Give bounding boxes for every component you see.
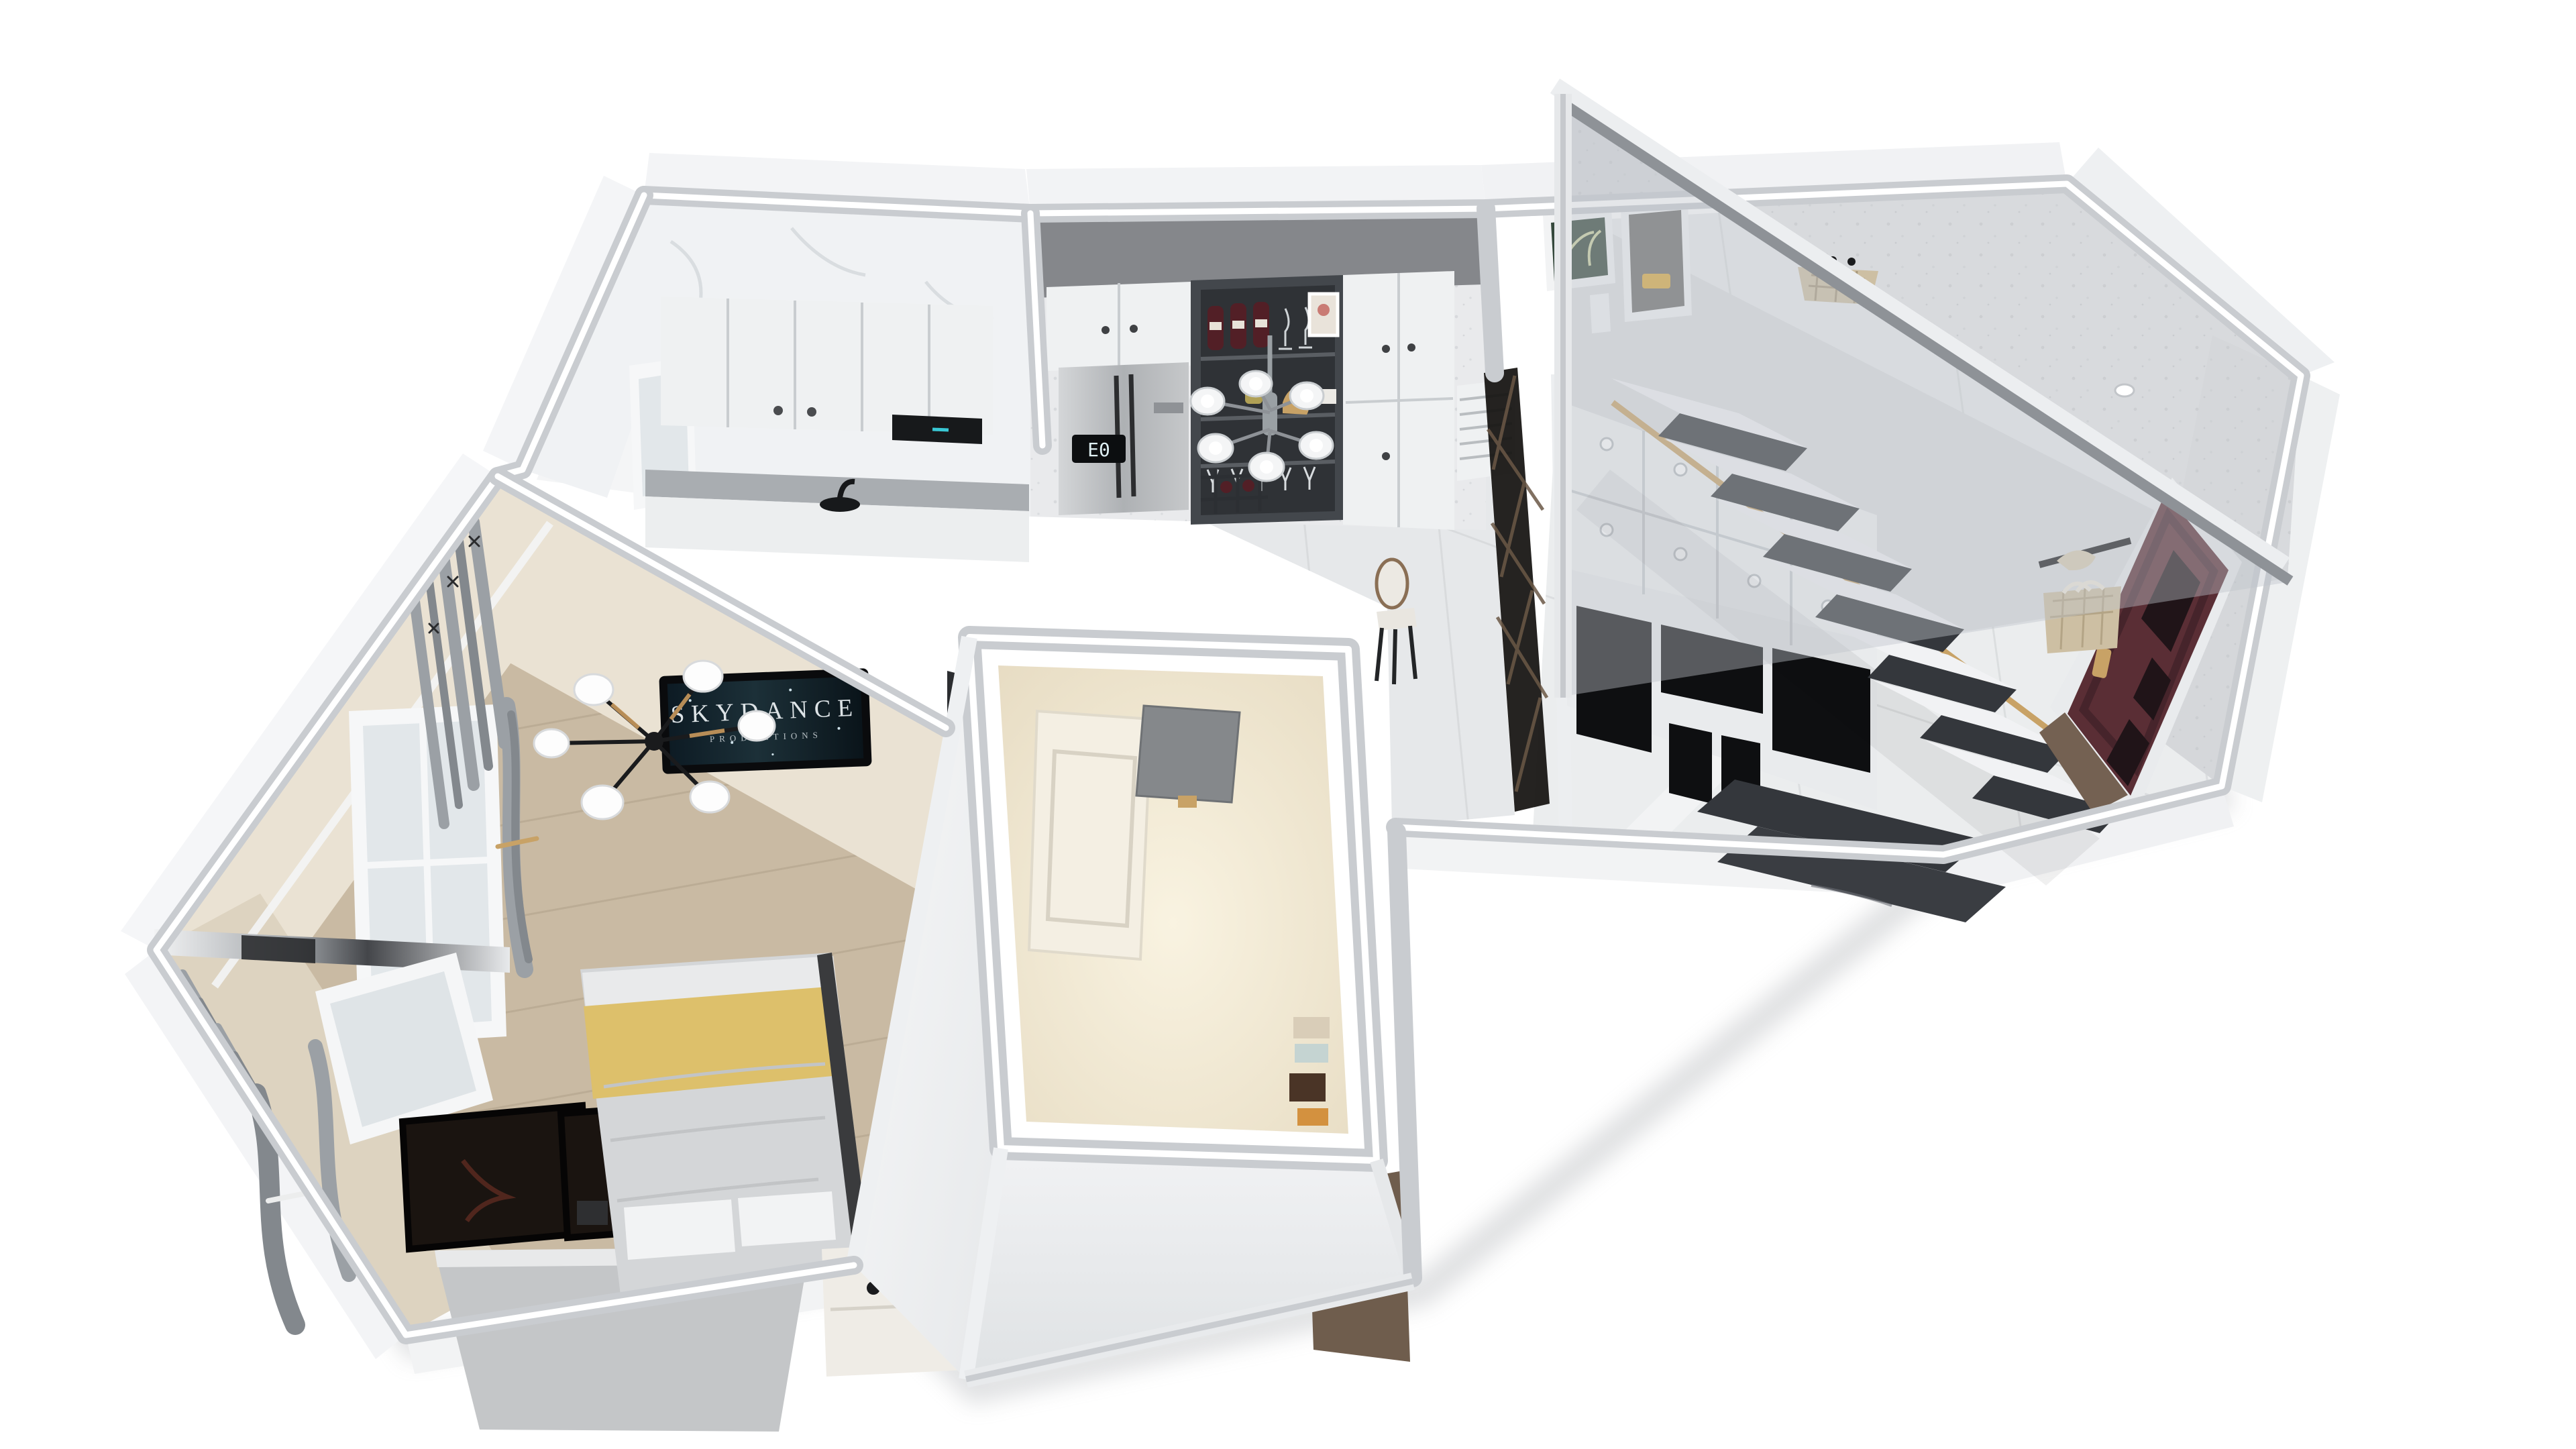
picture-art xyxy=(1318,304,1330,316)
recessed-light xyxy=(2115,384,2134,396)
hood-display xyxy=(932,429,949,430)
pillow-left xyxy=(624,1199,735,1260)
wall-hook xyxy=(1847,258,1856,266)
cabinet-knob xyxy=(1382,345,1390,353)
houndstooth-cushion-left xyxy=(577,1201,608,1225)
floorplan-render: SKYDANCE PRODUCTIONS xyxy=(0,0,2576,1449)
pillow-right xyxy=(738,1191,836,1246)
kitchen-upper-cabinets xyxy=(661,297,993,435)
sink xyxy=(820,497,860,512)
towel-gray xyxy=(1295,1044,1328,1063)
cabinet-knob xyxy=(807,407,816,417)
heater-bracket xyxy=(1178,796,1197,808)
bathroom-door xyxy=(1029,711,1151,959)
fridge: E0 xyxy=(1059,362,1189,515)
floorplan-stage: SKYDANCE PRODUCTIONS xyxy=(0,0,2576,1449)
cabinet-knob xyxy=(1102,326,1110,334)
cabinet-knob xyxy=(1382,452,1390,460)
cabinet-knob xyxy=(1407,343,1415,352)
white-cabinet-column xyxy=(1343,271,1454,530)
band-dining-stub xyxy=(1486,209,1495,373)
chair-back xyxy=(1377,559,1407,608)
shelf-dark-box xyxy=(1289,1073,1326,1102)
kitchen-counter xyxy=(645,470,1029,562)
wall-heater xyxy=(1136,706,1240,808)
black-panel-small-left xyxy=(1669,723,1712,804)
cabinet-knob xyxy=(1130,325,1138,333)
heater-body xyxy=(1136,706,1240,802)
towel-beige xyxy=(1293,1017,1330,1038)
chandelier-hub xyxy=(645,732,663,751)
upper-cabinet-over-fridge xyxy=(1046,282,1191,371)
mirror-strip-reflection xyxy=(241,935,315,963)
fridge-display-digits: E0 xyxy=(1087,439,1110,461)
bed xyxy=(580,953,872,1295)
fridge-handle-right xyxy=(1131,374,1134,496)
towel-orange xyxy=(1297,1108,1328,1126)
cabinet-knob xyxy=(773,406,783,415)
fridge-vent xyxy=(1154,402,1183,413)
wine-bottles xyxy=(1207,302,1269,350)
